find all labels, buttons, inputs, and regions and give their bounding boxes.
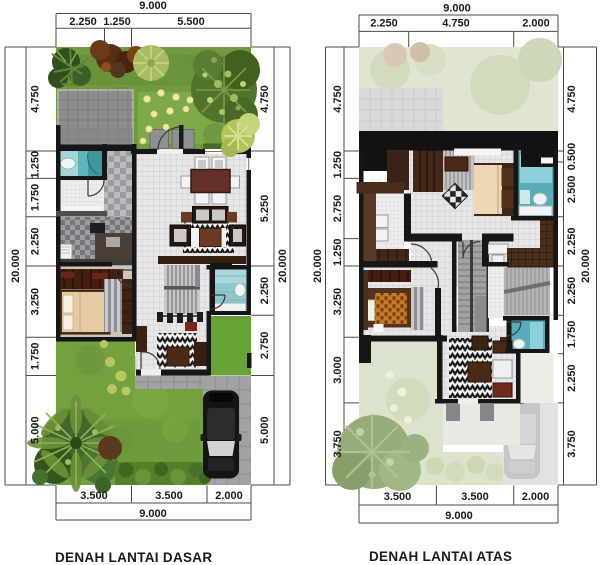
- svg-text:DENAH LANTAI ATAS: DENAH LANTAI ATAS: [369, 549, 512, 564]
- svg-text:4.750: 4.750: [30, 85, 42, 113]
- svg-text:5.000: 5.000: [259, 416, 271, 444]
- svg-text:9.000: 9.000: [139, 0, 167, 12]
- svg-text:3.500: 3.500: [155, 490, 183, 502]
- svg-text:0.500: 0.500: [566, 143, 578, 171]
- svg-text:2.250: 2.250: [566, 277, 578, 305]
- svg-text:4.750: 4.750: [332, 85, 344, 113]
- svg-text:2.750: 2.750: [259, 332, 271, 360]
- svg-text:9.000: 9.000: [445, 510, 473, 522]
- svg-text:1.250: 1.250: [30, 151, 42, 179]
- svg-text:9.000: 9.000: [443, 3, 471, 15]
- svg-text:2.250: 2.250: [259, 277, 271, 305]
- svg-text:1.750: 1.750: [566, 321, 578, 349]
- svg-text:2.250: 2.250: [69, 16, 97, 28]
- svg-text:2.250: 2.250: [566, 228, 578, 256]
- svg-text:1.250: 1.250: [332, 151, 344, 179]
- svg-text:4.750: 4.750: [566, 85, 578, 113]
- svg-text:3.500: 3.500: [80, 490, 108, 502]
- svg-text:2.750: 2.750: [332, 195, 344, 223]
- svg-text:1.250: 1.250: [332, 239, 344, 267]
- svg-text:3.250: 3.250: [30, 288, 42, 316]
- svg-text:5.000: 5.000: [30, 416, 42, 444]
- svg-text:2.250: 2.250: [566, 364, 578, 392]
- svg-text:1.750: 1.750: [30, 343, 42, 371]
- svg-text:3.750: 3.750: [566, 430, 578, 458]
- svg-text:1.750: 1.750: [30, 184, 42, 212]
- svg-text:9.000: 9.000: [139, 508, 167, 520]
- svg-text:2.000: 2.000: [215, 490, 243, 502]
- svg-text:20.000: 20.000: [10, 249, 22, 283]
- svg-text:20.000: 20.000: [580, 249, 592, 283]
- svg-text:4.750: 4.750: [442, 18, 470, 30]
- svg-text:DENAH LANTAI DASAR: DENAH LANTAI DASAR: [55, 550, 212, 565]
- svg-text:20.000: 20.000: [277, 249, 289, 283]
- svg-text:2.000: 2.000: [522, 18, 550, 30]
- svg-text:4.750: 4.750: [259, 85, 271, 113]
- svg-text:3.500: 3.500: [461, 491, 489, 503]
- svg-text:3.250: 3.250: [332, 288, 344, 316]
- svg-text:1.250: 1.250: [103, 16, 131, 28]
- svg-text:5.250: 5.250: [259, 195, 271, 223]
- svg-text:2.250: 2.250: [30, 228, 42, 256]
- svg-text:3.000: 3.000: [332, 356, 344, 384]
- svg-text:2.500: 2.500: [566, 176, 578, 204]
- svg-text:5.500: 5.500: [177, 16, 205, 28]
- svg-text:20.000: 20.000: [312, 249, 324, 283]
- svg-text:2.000: 2.000: [522, 491, 550, 503]
- svg-text:2.250: 2.250: [370, 18, 398, 30]
- svg-text:3.500: 3.500: [384, 491, 412, 503]
- svg-text:3.750: 3.750: [332, 430, 344, 458]
